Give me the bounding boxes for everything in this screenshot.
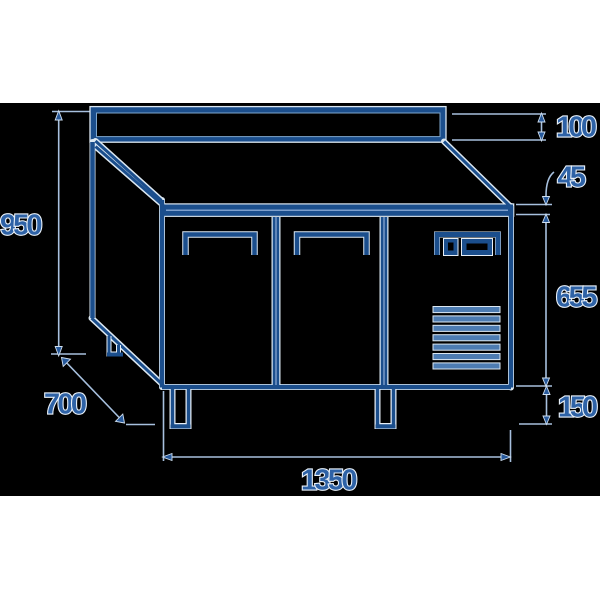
svg-text:150: 150 <box>558 392 598 424</box>
svg-text:950: 950 <box>0 210 43 242</box>
svg-text:700: 700 <box>44 389 87 421</box>
svg-text:1350: 1350 <box>301 465 358 497</box>
svg-text:655: 655 <box>556 282 598 314</box>
svg-text:100: 100 <box>556 112 597 144</box>
svg-text:45: 45 <box>558 162 587 194</box>
